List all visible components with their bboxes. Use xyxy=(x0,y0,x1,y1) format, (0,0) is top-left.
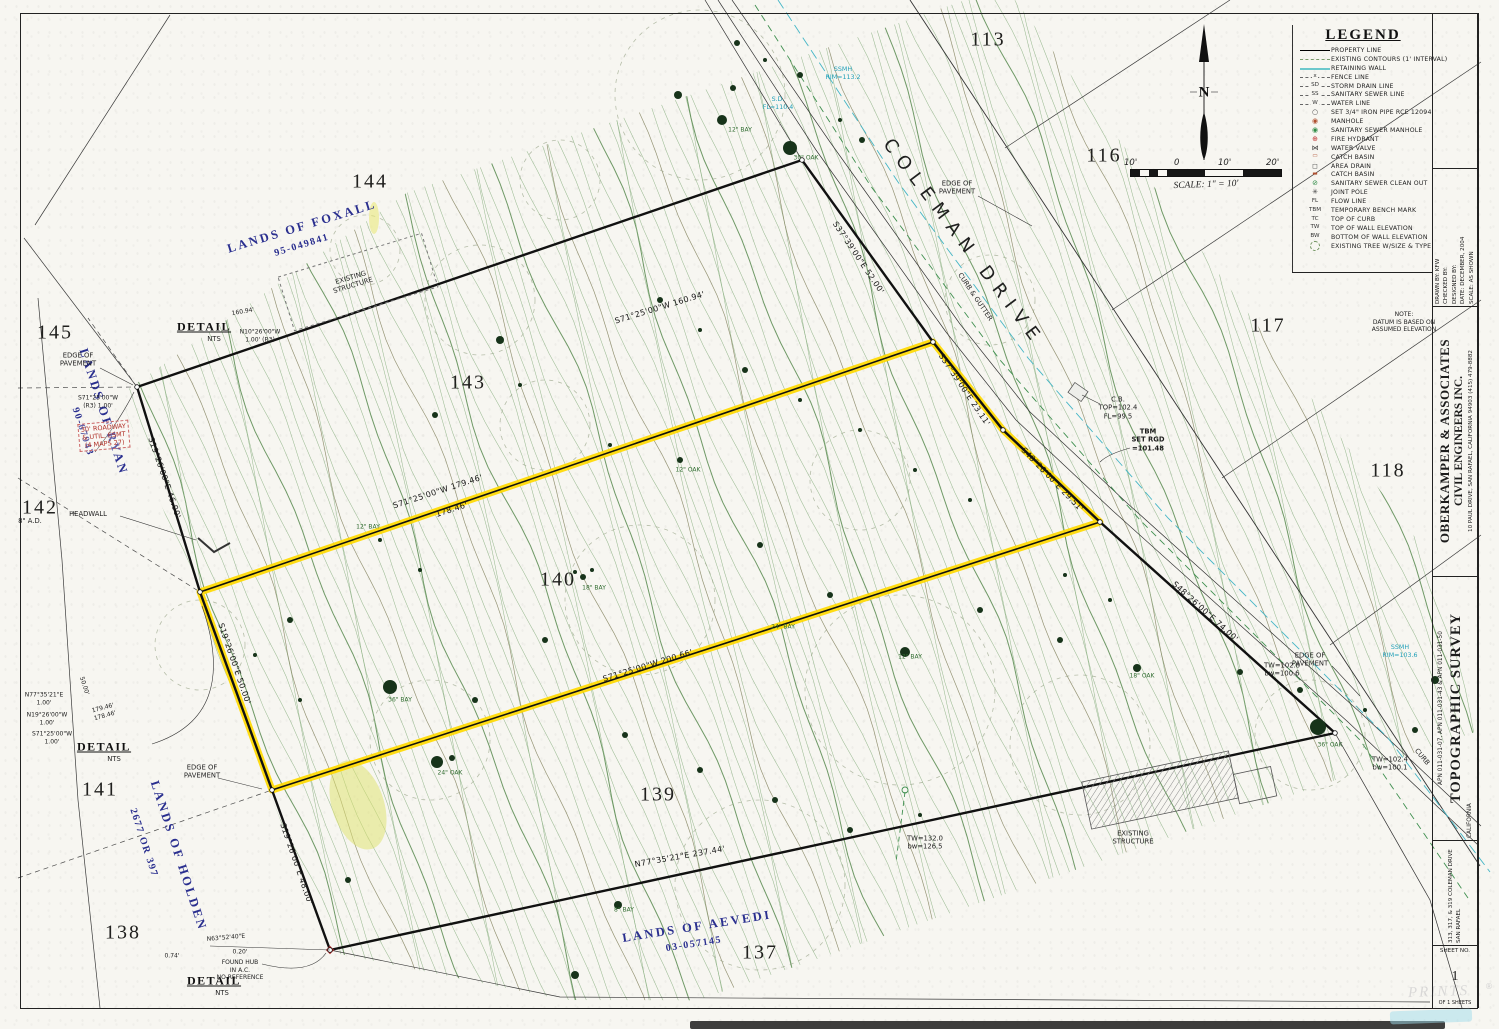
legend-item-label: RETAINING WALL xyxy=(1331,65,1386,72)
map-label: LANDS OF HOLDEN xyxy=(146,779,209,933)
map-label: N63°52'40"E xyxy=(206,933,245,944)
titleblock-line xyxy=(1478,13,1479,1008)
scale-bar-ticks: 10' 0 10' 20' xyxy=(1130,158,1282,169)
property-symbol xyxy=(1299,46,1331,54)
map-label: 30" OAK xyxy=(794,154,819,162)
map-label: S71°25'00"W 200.66' xyxy=(602,648,695,685)
map-label: NTS xyxy=(207,335,221,343)
wv-symbol: ⋈ xyxy=(1299,144,1331,152)
map-label: S19°26'00"E 46.00' xyxy=(145,436,182,520)
legend-item: ⊕FIRE HYDRANT xyxy=(1299,135,1427,144)
map-label: 24" OAK xyxy=(438,769,463,777)
tree-symbol xyxy=(1299,242,1331,250)
tbm-symbol: TBM xyxy=(1299,206,1331,214)
scale-note: SCALE: AS SHOWN xyxy=(1468,168,1476,304)
map-label: S48°26'00"E 74.00' xyxy=(1170,580,1240,645)
legend-box: LEGEND PROPERTY LINEEXISTING CONTOURS (1… xyxy=(1292,25,1430,273)
legend-item: RETAINING WALL xyxy=(1299,64,1427,73)
map-label: 178.46' xyxy=(435,500,469,520)
legend-item-label: TOP OF CURB xyxy=(1331,216,1375,223)
legend-item: ◉MANHOLE xyxy=(1299,117,1427,126)
map-label: S37°39'00"E 52.00' xyxy=(830,220,886,296)
legend-item: ✳JOINT POLE xyxy=(1299,188,1427,197)
titleblock-line xyxy=(1432,13,1433,1008)
map-label: COLEMAN DRIVE xyxy=(877,135,1048,352)
legend-item-label: AREA DRAIN xyxy=(1331,163,1371,170)
firm-name: OBERKAMPER & ASSOCIATES xyxy=(1437,308,1453,574)
map-label: CURB xyxy=(1413,747,1432,767)
parcel-number: 142 xyxy=(22,496,58,521)
scale-tick: 0 xyxy=(1174,158,1179,168)
map-label: EDGE OF PAVEMENT xyxy=(60,352,96,369)
checked-by: CHECKED BY: xyxy=(1442,168,1450,304)
map-label: 18" BAY xyxy=(582,584,606,592)
legend-item-label: EXISTING CONTOURS (1' INTERVAL) xyxy=(1331,56,1447,63)
parcel-number: 143 xyxy=(450,371,486,396)
firm-address: 10 PAUL DRIVE, SAN RAFAEL, CALIFORNIA 94… xyxy=(1468,308,1474,574)
map-label: LANDS OF AEVEDI xyxy=(621,907,773,946)
scan-artifact-strip xyxy=(690,1021,1445,1029)
retwall-symbol xyxy=(1299,64,1331,72)
tw-symbol: TW xyxy=(1299,224,1331,232)
map-label: SSMH RIM=113.2 xyxy=(826,66,861,82)
map-label: S48°26'00"E 29.51' xyxy=(1019,446,1086,514)
parcel-number: 141 xyxy=(82,778,118,803)
map-label: 12" BAY xyxy=(356,523,380,531)
map-label: 30' ROADWAY & UTIL. ESMT (4 MAPS 27) xyxy=(77,420,130,453)
map-label: 03-057145 xyxy=(665,934,723,955)
ad-symbol: ◻ xyxy=(1299,162,1331,170)
map-label: EDGE OF PAVEMENT xyxy=(184,764,220,781)
map-label: CURB & GUTTER xyxy=(956,271,994,322)
map-label: S71°25'00"W (R3) 1.00' xyxy=(78,395,118,410)
scale-tick: 10' xyxy=(1218,158,1231,168)
map-label: FOUND HUB IN A.C. NO REFERENCE xyxy=(217,959,264,982)
map-label: 36" OAK xyxy=(1318,741,1343,749)
legend-item: BWBOTTOM OF WALL ELEVATION xyxy=(1299,233,1427,242)
legend-item-label: WATER LINE xyxy=(1331,100,1370,107)
map-label: 8" BAY xyxy=(614,906,634,914)
legend-item: TBMTEMPORARY BENCH MARK xyxy=(1299,206,1427,215)
titleblock-line xyxy=(1432,840,1478,841)
titleblock-line xyxy=(1432,306,1478,307)
map-label: TBM SET RGD =101.48 xyxy=(1132,427,1165,452)
map-label: 36" BAY xyxy=(388,696,412,704)
parcel-number: 137 xyxy=(742,941,778,966)
designed-by: DESIGNED BY: xyxy=(1451,168,1459,304)
legend-title: LEGEND xyxy=(1299,27,1427,44)
legend-item-label: MANHOLE xyxy=(1331,118,1363,125)
legend-item: TCTOP OF CURB xyxy=(1299,215,1427,224)
parcel-number: 140 xyxy=(540,568,576,593)
tc-symbol: TC xyxy=(1299,215,1331,223)
sheet-no: 1 xyxy=(1452,969,1459,985)
legend-item: ⋈WATER VALVE xyxy=(1299,144,1427,153)
map-label: TW=102.8 bw=100.6 xyxy=(1264,662,1300,679)
legend-item-label: CATCH BASIN xyxy=(1331,171,1375,178)
map-labels: 113116117118144145142141138143140139137L… xyxy=(0,0,1499,1029)
map-label: EXISTING STRUCTURE xyxy=(330,268,374,296)
parcel-number: 117 xyxy=(1250,314,1285,339)
sheet-number-box: SHEET NO. 1 OF 1 SHEETS xyxy=(1432,945,1478,1008)
map-label: TW=132.0 bw=126.5 xyxy=(907,835,943,852)
manhole-symbol: ◉ xyxy=(1299,118,1331,126)
legend-item: FLFLOW LINE xyxy=(1299,197,1427,206)
map-label: 179.46' 178.46' xyxy=(91,702,117,722)
map-label: S19°26'00"E 50.00' xyxy=(215,622,252,706)
map-label: 0.20' xyxy=(232,948,247,956)
titleblock-address: 313, 317, & 319 COLEMAN DRIVE SAN RAFAEL xyxy=(1434,842,1476,943)
ssco-symbol: ⊘ xyxy=(1299,180,1331,188)
map-label: 50.00' xyxy=(78,676,91,696)
map-label: DETAIL xyxy=(77,740,131,755)
legend-item-label: SANITARY SEWER MANHOLE xyxy=(1331,127,1423,134)
legend-item-label: TOP OF WALL ELEVATION xyxy=(1331,225,1413,232)
map-label: S37°39'00"E 23.11' xyxy=(936,352,992,428)
sheet-no-label: SHEET NO. xyxy=(1440,948,1470,954)
legend-item-label: EXISTING TREE W/SIZE & TYPE xyxy=(1331,243,1431,250)
legend-item: ◉SANITARY SEWER MANHOLE xyxy=(1299,126,1427,135)
parcel-number: 138 xyxy=(105,921,141,946)
map-label: EDGE OF PAVEMENT xyxy=(939,180,975,197)
scale-tick: 20' xyxy=(1266,158,1279,168)
legend-item-label: TEMPORARY BENCH MARK xyxy=(1331,207,1416,214)
map-label: S71°25'00"W 160.94' xyxy=(614,290,707,327)
map-label: S.D. FL=110.4 xyxy=(763,96,793,112)
map-label: 95-049841 xyxy=(273,232,331,261)
legend-item: SSSANITARY SEWER LINE xyxy=(1299,90,1427,99)
scale-tick: 10' xyxy=(1124,158,1137,168)
map-label: N77°35'21"E 1.00' xyxy=(25,692,64,707)
map-label: 12" BAY xyxy=(728,126,752,134)
map-label: C.B. TOP=102.4 FL=99.5 xyxy=(1099,395,1138,420)
map-label: TW=102.4 bw=100.1 xyxy=(1372,756,1408,773)
legend-item-label: CATCH BASIN xyxy=(1331,154,1375,161)
legend-item: ○SET 3/4" IRON PIPE RCE 12094 xyxy=(1299,108,1427,117)
map-label: 90-67943 xyxy=(68,406,95,458)
map-label: HEADWALL xyxy=(69,510,107,518)
map-label: 12" OAK xyxy=(676,466,701,474)
map-label: EDGE OF PAVEMENT xyxy=(1292,652,1328,669)
legend-item: EXISTING TREE W/SIZE & TYPE xyxy=(1299,242,1427,251)
drawn-by: DRAWN BY: KFW xyxy=(1434,168,1442,304)
legend-item-label: STORM DRAIN LINE xyxy=(1331,83,1394,90)
map-label: S71°25'00"W 1.00' xyxy=(32,731,72,746)
city-label: SAN RAFAEL xyxy=(1455,842,1463,943)
legend-item-label: FENCE LINE xyxy=(1331,74,1369,81)
map-label: N xyxy=(1199,84,1210,103)
storm-symbol: SD xyxy=(1299,82,1331,90)
legend-item: TWTOP OF WALL ELEVATION xyxy=(1299,224,1427,233)
legend-item: ▭CATCH BASIN xyxy=(1299,153,1427,162)
legend-item: WWATER LINE xyxy=(1299,99,1427,108)
map-label: EXISTING STRUCTURE xyxy=(1112,830,1153,847)
map-label: SSMH RIM=103.6 xyxy=(1383,644,1418,660)
map-label: 18" OAK xyxy=(1130,672,1155,680)
date: DATE: DECEMBER, 2004 xyxy=(1459,168,1467,304)
map-label: N19°26'00"W 1.00' xyxy=(27,712,68,727)
parcel-number: 116 xyxy=(1086,144,1121,169)
legend-item-label: SET 3/4" IRON PIPE RCE 12094 xyxy=(1331,109,1432,116)
map-label: 2677 OR 397 xyxy=(126,807,160,879)
map-label: S71°25'00"W 179.46' xyxy=(392,473,484,511)
legend-items: PROPERTY LINEEXISTING CONTOURS (1' INTER… xyxy=(1299,46,1427,250)
legend-item-label: SANITARY SEWER CLEAN OUT xyxy=(1331,180,1428,187)
legend-item-label: WATER VALVE xyxy=(1331,145,1376,152)
bw-symbol: BW xyxy=(1299,233,1331,241)
legend-item-label: JOINT POLE xyxy=(1331,189,1368,196)
legend-item-label: BOTTOM OF WALL ELEVATION xyxy=(1331,234,1428,241)
jp-symbol: ✳ xyxy=(1299,189,1331,197)
survey-sheet: 113116117118144145142141138143140139137L… xyxy=(0,0,1499,1029)
map-label: N77°35'21"E 237.44' xyxy=(634,844,726,870)
parcel-number: 118 xyxy=(1370,459,1405,484)
apn-numbers: APN 011-031-07, APN 011-031-43 & APN 011… xyxy=(1438,578,1444,838)
fl-symbol: FL xyxy=(1299,198,1331,206)
map-label: DETAIL xyxy=(177,320,231,335)
of-sheets: OF 1 SHEETS xyxy=(1439,1000,1472,1006)
map-label: LANDS OF RYAN xyxy=(75,347,131,478)
legend-item-label: FIRE HYDRANT xyxy=(1331,136,1379,143)
map-label: NTS xyxy=(107,755,121,763)
map-label: 160.94' xyxy=(231,306,255,317)
parcel-number: 145 xyxy=(37,321,73,346)
legend-item: EXISTING CONTOURS (1' INTERVAL) xyxy=(1299,55,1427,64)
firm-name-2: CIVIL ENGINEERS INC. xyxy=(1453,308,1465,574)
map-label: 0.74' xyxy=(164,952,179,960)
titleblock-firm: OBERKAMPER & ASSOCIATES CIVIL ENGINEERS … xyxy=(1434,308,1476,574)
map-label: 12" BAY xyxy=(898,653,922,661)
titleblock-title: APN 011-031-07, APN 011-031-43 & APN 011… xyxy=(1434,578,1476,838)
legend-item-label: FLOW LINE xyxy=(1331,198,1366,205)
map-label: 8" A.D. xyxy=(18,517,42,525)
map-label: LANDS OF FOXALL xyxy=(226,197,379,257)
cb2-symbol: ▬ xyxy=(1299,171,1331,179)
contour-symbol xyxy=(1299,55,1331,63)
legend-item-label: SANITARY SEWER LINE xyxy=(1331,91,1405,98)
water-symbol: W xyxy=(1299,100,1331,108)
legend-item: ▬CATCH BASIN xyxy=(1299,170,1427,179)
titleblock-line xyxy=(1432,576,1478,577)
site-address: 313, 317, & 319 COLEMAN DRIVE xyxy=(1447,842,1455,943)
legend-item: ⊘SANITARY SEWER CLEAN OUT xyxy=(1299,179,1427,188)
hydrant-symbol: ⊕ xyxy=(1299,135,1331,143)
state-label: CALIFORNIA xyxy=(1467,578,1473,838)
legend-item: SDSTORM DRAIN LINE xyxy=(1299,82,1427,91)
map-label: NTS xyxy=(215,989,229,997)
ssmh-symbol: ◉ xyxy=(1299,126,1331,134)
fence-symbol: x xyxy=(1299,73,1331,81)
parcel-number: 144 xyxy=(352,170,388,195)
map-label: 24" BAY xyxy=(771,623,795,631)
scale-bar: 10' 0 10' 20' SCALE: 1" = 10' xyxy=(1130,158,1282,190)
map-label: DETAIL xyxy=(187,974,241,989)
scale-bar-graphic xyxy=(1130,169,1282,177)
legend-item: PROPERTY LINE xyxy=(1299,46,1427,55)
parcel-number: 113 xyxy=(970,28,1005,53)
survey-title: TOPOGRAPHIC SURVEY xyxy=(1448,578,1465,838)
legend-bottom-line xyxy=(1292,272,1432,273)
legend-item: xFENCE LINE xyxy=(1299,73,1427,82)
map-label: N10°26'00"W 1.00' (R3) xyxy=(240,329,281,344)
sewer-symbol: SS xyxy=(1299,91,1331,99)
map-label: NOTE: DATUM IS BASED ON ASSUMED ELEVATIO… xyxy=(1372,311,1437,334)
titleblock-credits: DRAWN BY: KFW CHECKED BY: DESIGNED BY: D… xyxy=(1434,168,1476,304)
parcel-number: 139 xyxy=(640,783,676,808)
map-label: S19°26'00"E 48.00' xyxy=(277,822,314,906)
legend-item-label: PROPERTY LINE xyxy=(1331,47,1381,54)
legend-item: ◻AREA DRAIN xyxy=(1299,162,1427,171)
cb-symbol: ▭ xyxy=(1299,153,1331,161)
ironpipe-symbol: ○ xyxy=(1299,109,1331,117)
